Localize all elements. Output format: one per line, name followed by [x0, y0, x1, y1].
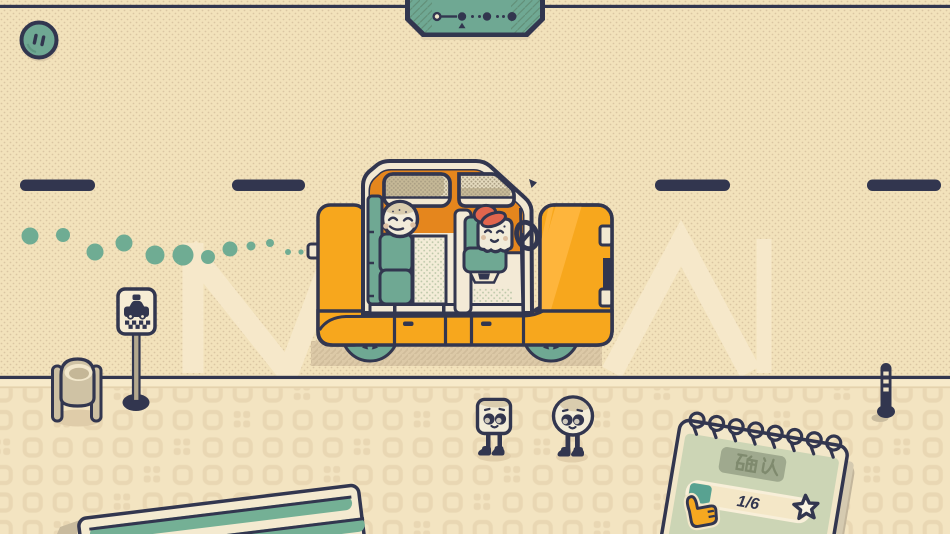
svg-text:1/6: 1/6 — [736, 493, 761, 513]
